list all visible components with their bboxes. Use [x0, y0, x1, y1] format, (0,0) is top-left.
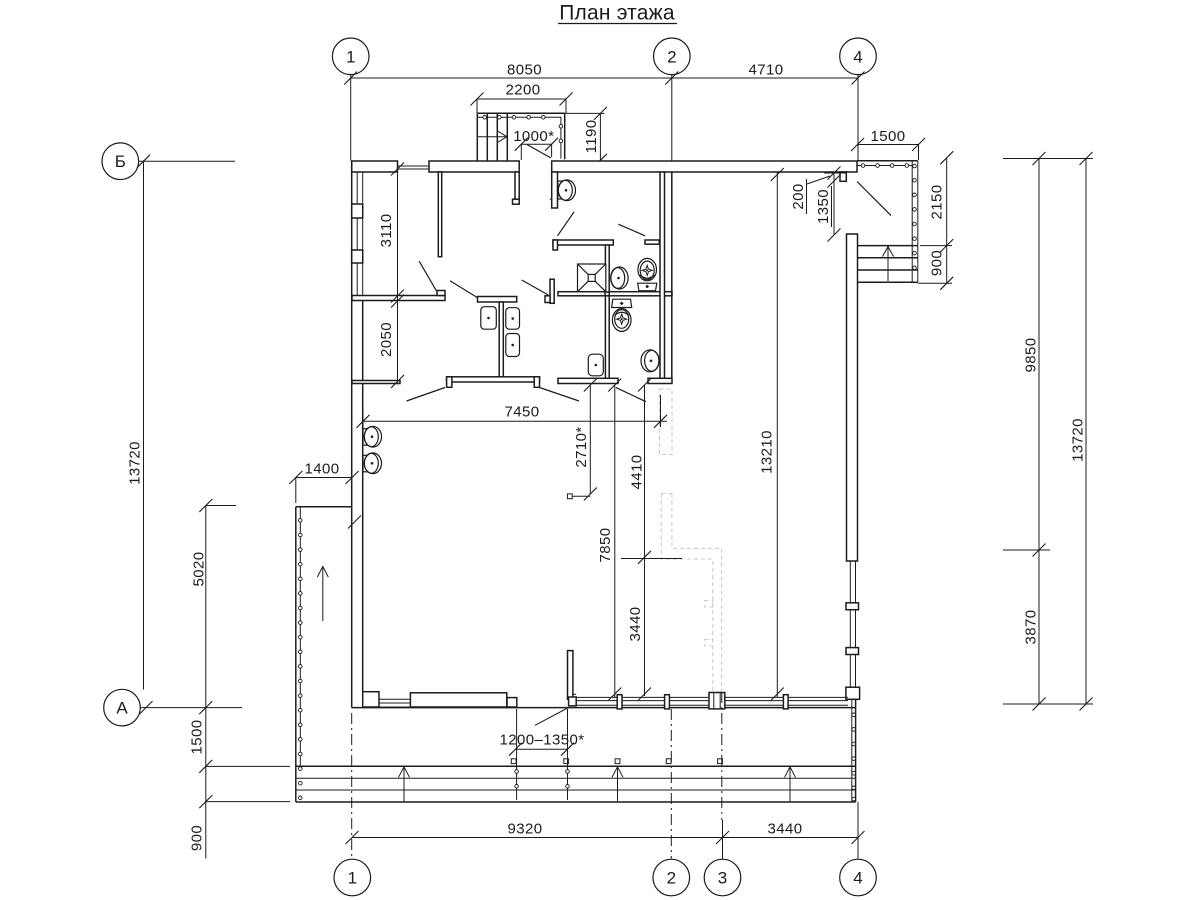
svg-text:4: 4: [853, 47, 862, 66]
svg-text:13720: 13720: [127, 441, 144, 485]
svg-text:1500: 1500: [189, 720, 206, 755]
svg-text:4: 4: [853, 869, 862, 888]
svg-text:5020: 5020: [190, 552, 207, 587]
svg-text:2: 2: [667, 869, 676, 888]
svg-text:1: 1: [348, 869, 357, 888]
svg-text:9320: 9320: [508, 821, 543, 838]
svg-text:2050: 2050: [378, 322, 395, 357]
svg-text:8050: 8050: [507, 61, 542, 78]
svg-text:1350: 1350: [815, 189, 832, 224]
svg-text:А: А: [116, 699, 128, 718]
svg-text:7450: 7450: [505, 404, 540, 421]
svg-text:1000*: 1000*: [513, 128, 554, 145]
svg-text:900: 900: [929, 250, 946, 276]
svg-text:9850: 9850: [1023, 338, 1040, 373]
svg-text:3870: 3870: [1023, 610, 1040, 645]
svg-text:1: 1: [346, 47, 355, 66]
svg-text:4410: 4410: [629, 455, 646, 490]
svg-text:2710*: 2710*: [573, 426, 590, 467]
svg-text:2150: 2150: [929, 185, 946, 220]
svg-text:900: 900: [189, 825, 206, 851]
svg-text:1190: 1190: [583, 120, 600, 154]
svg-text:1500: 1500: [871, 128, 906, 145]
svg-text:3440: 3440: [627, 607, 644, 642]
svg-text:2200: 2200: [506, 81, 541, 98]
svg-text:3440: 3440: [768, 821, 803, 838]
svg-text:3110: 3110: [378, 214, 395, 248]
svg-text:7850: 7850: [597, 528, 614, 563]
svg-text:3: 3: [718, 869, 727, 888]
svg-text:Б: Б: [115, 152, 126, 171]
svg-text:1400: 1400: [305, 461, 340, 478]
svg-text:13720: 13720: [1070, 418, 1087, 462]
svg-text:13210: 13210: [759, 430, 776, 474]
svg-text:2: 2: [667, 47, 676, 66]
svg-text:4710: 4710: [749, 61, 784, 78]
svg-text:1200–1350*: 1200–1350*: [500, 732, 585, 749]
svg-text:План этажа: План этажа: [559, 2, 675, 25]
svg-text:200: 200: [790, 183, 807, 209]
